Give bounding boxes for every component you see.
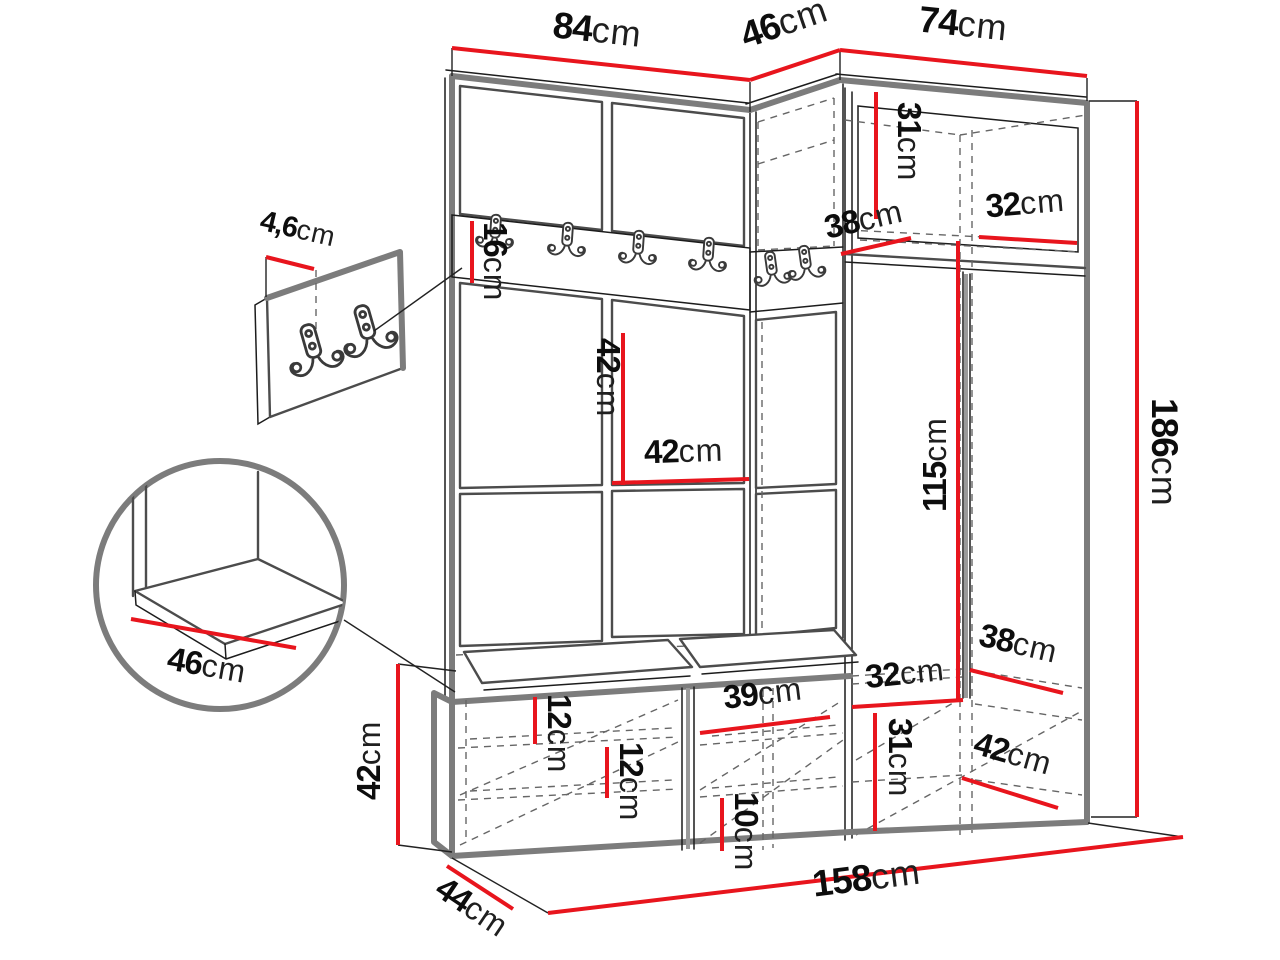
svg-text:32cm: 32cm (984, 181, 1066, 225)
svg-text:12cm: 12cm (613, 742, 650, 821)
svg-text:4,6cm: 4,6cm (257, 205, 339, 253)
dimension-upper-shelf-depth: 32cm (979, 181, 1077, 243)
seat-cushion (464, 640, 692, 683)
diagram-canvas: 46cm 84cm 46cm 74cm 4,6cm 16cm (0, 0, 1280, 960)
dimension-shelf-gap-lower: 12cm (607, 742, 650, 821)
svg-text:12cm: 12cm (541, 694, 578, 773)
upholstered-panel (460, 86, 602, 230)
svg-text:42cm: 42cm (643, 431, 724, 471)
upholstered-panel (460, 492, 602, 646)
dimension-hanging-space-height: 115cm (916, 241, 958, 699)
svg-text:39cm: 39cm (721, 669, 804, 715)
svg-text:32cm: 32cm (863, 650, 946, 695)
seat-corner-detail: 46cm (96, 461, 455, 709)
svg-text:115cm: 115cm (916, 417, 953, 512)
svg-text:42cm: 42cm (350, 721, 387, 800)
svg-text:31cm: 31cm (882, 718, 919, 797)
svg-text:16cm: 16cm (477, 222, 514, 301)
dimension-lower-shelf-width: 38cm (970, 616, 1063, 693)
svg-text:38cm: 38cm (976, 616, 1062, 670)
dimension-lower-shelf-height: 31cm (875, 713, 919, 831)
dimension-hook-rail-height: 16cm (472, 221, 514, 301)
svg-text:31cm: 31cm (891, 102, 928, 181)
upholstered-panel (756, 490, 836, 636)
svg-text:46cm: 46cm (735, 0, 833, 56)
bench-side-panel (434, 693, 452, 856)
dimension-shelf-gap-upper: 12cm (535, 694, 578, 773)
svg-text:84cm: 84cm (551, 4, 644, 55)
furniture-dimension-diagram: 46cm 84cm 46cm 74cm 4,6cm 16cm (0, 0, 1280, 960)
upholstered-panel (756, 312, 836, 488)
dimension-label: 46cm (165, 640, 250, 690)
double-hook-icon (751, 249, 792, 286)
svg-text:158cm: 158cm (810, 851, 923, 905)
dimension-top-corner-depth: 46cm (735, 0, 840, 80)
upholstered-panel (612, 103, 744, 246)
upholstered-panel (460, 283, 602, 488)
upholstered-panel (612, 489, 744, 637)
hook-panel-detail (255, 252, 462, 424)
svg-text:186cm: 186cm (1144, 398, 1185, 507)
dimension-lower-compartment-depth: 42cm (962, 724, 1058, 808)
dimension-total-height: 186cm (1089, 101, 1185, 817)
dimension-bench-depth: 44cm (429, 866, 515, 944)
svg-text:42cm: 42cm (590, 338, 627, 417)
dimension-bottom-gap: 10cm (722, 792, 765, 871)
corner-section (746, 74, 843, 638)
svg-text:10cm: 10cm (728, 792, 765, 871)
double-hook-icon (785, 243, 826, 280)
svg-text:74cm: 74cm (917, 0, 1010, 49)
svg-text:38cm: 38cm (821, 192, 907, 246)
